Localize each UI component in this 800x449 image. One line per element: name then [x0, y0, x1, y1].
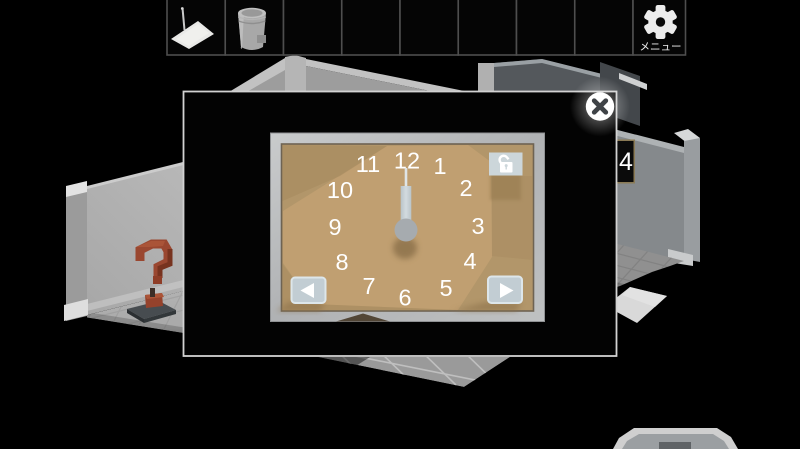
svg-text:9: 9	[328, 214, 341, 240]
svg-text:4: 4	[463, 248, 476, 274]
svg-text:8: 8	[335, 249, 348, 275]
svg-text:5: 5	[439, 275, 452, 301]
svg-text:3: 3	[471, 213, 484, 239]
svg-text:7: 7	[362, 273, 375, 299]
svg-text:6: 6	[398, 285, 411, 311]
svg-text:11: 11	[356, 151, 380, 177]
svg-text:10: 10	[327, 177, 353, 203]
svg-text:メニュー: メニュー	[640, 41, 682, 53]
svg-text:2: 2	[459, 175, 472, 201]
svg-text:1: 1	[433, 153, 446, 179]
svg-text:4: 4	[619, 148, 633, 176]
